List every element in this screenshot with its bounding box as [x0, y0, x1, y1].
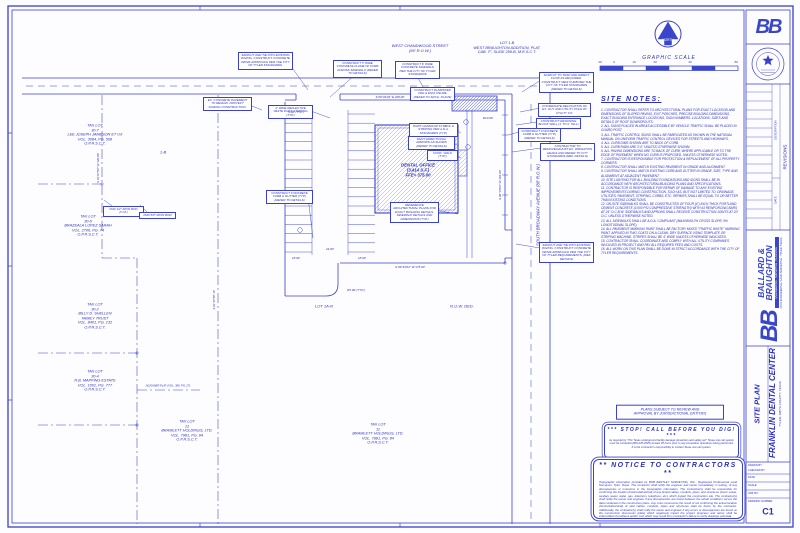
- notice-body: Topographic information provided by BOB …: [599, 481, 737, 519]
- dim-label: 18.00': [292, 256, 300, 260]
- callout: SAWCUT TO TRAP AND DIRECT FLOW AS REQUIR…: [539, 72, 594, 93]
- callout: COORDINATE RELOCATION OF EX. GUY AND UTI…: [538, 103, 591, 117]
- site-notes-title: SITE NOTES:: [601, 96, 661, 104]
- callout: CONC. WALK (TYP.): [427, 150, 458, 161]
- revisions-description-header: DESCRIPTION: [774, 120, 777, 139]
- bearing-label: N 89°44'04" W 175.00': [395, 265, 425, 269]
- revisions-title: REVISIONS: [782, 144, 788, 169]
- dim-label: R5.00' (TYP.): [347, 288, 365, 292]
- scale-tick: 0: [613, 60, 615, 64]
- tax-lot-label: TAX LOT 30-2 BILLY D. SHELLEN FAMILY TRU…: [78, 302, 112, 329]
- notice-title: ** NOTICE TO CONTRACTORS **: [594, 462, 742, 479]
- callout: CONSTRUCT DUMPSTER PAD & ENCLOSURE (REFE…: [410, 87, 455, 101]
- dim-label: 18.00': [358, 256, 366, 260]
- revisions-table-lines: [746, 84, 780, 230]
- stop-dig-box: *** STOP! CALL BEFORE YOU DIG! *** As re…: [604, 424, 739, 458]
- sheet-title: SITE PLAN: [753, 384, 762, 423]
- stop-dig-body: As required by "The Texas underground fa…: [609, 439, 734, 449]
- project-name: FRANKLIN DENTAL CENTER: [769, 350, 778, 458]
- callout: SAWCUT AND TIE INTO EXISTING PAVING. CON…: [238, 52, 293, 70]
- dim-label: R10.00': [483, 116, 493, 120]
- tax-lot-label: TAX LOT 30-7 LEE JOSEPH JAMESON ET UX VO…: [67, 124, 122, 147]
- bearing-label: S 01°07'56" W: [212, 290, 216, 309]
- graphic-scale-bar: [600, 66, 738, 71]
- blueprint-sheet: NORTH GRAPHIC SCALE 20 0 10 20 40 80 SIT…: [0, 0, 800, 533]
- callout: SAWCUT AND TIE INTO EXISTING PAVING. CON…: [539, 242, 594, 263]
- bearing-label: S 01°07'56" W 120.00': [96, 153, 100, 183]
- revisions-date-header: DATE: [774, 196, 777, 203]
- job-no-label: JOB NO.:: [748, 492, 759, 495]
- callout: CONSTRUCT 5' WIDE CONCRETE FLUME W/ CURB…: [333, 60, 382, 78]
- notice-contractors-box: ** NOTICE TO CONTRACTORS ** Topographic …: [593, 459, 743, 519]
- firm-logo-initials-large: BB: [756, 311, 784, 342]
- adjoiner-plat-label: ADJOINER PLAT (VOL. 389, PG. 27): [146, 385, 191, 388]
- sheet-number: C1: [762, 507, 774, 518]
- callout: CONSTRUCT 6' WIDE CONCRETE SIDEWALK PER …: [395, 61, 440, 79]
- scale-tick: 20: [653, 60, 656, 64]
- dim-label: 9.00' (TYP.): [288, 110, 304, 114]
- parking-stripes: [285, 110, 375, 255]
- firm-name-line2: BRAUGHTON: [765, 238, 774, 309]
- project-location: TYLER, SMITH COUNTY, TEXAS: [778, 350, 782, 458]
- callout: FND 5/8" IRON ROD: [139, 212, 176, 219]
- date-label: DATE:: [748, 476, 755, 479]
- callout: CONSTRUCT CONCRETE CURB & GUTTER (TYP.) …: [518, 128, 561, 142]
- row-ded-label: R.O.W. DED.: [450, 305, 474, 310]
- callout-leaders: [104, 62, 541, 248]
- drawing-number-label: DRAWING NUMBER: [748, 500, 772, 503]
- scale-tick: 10: [632, 60, 635, 64]
- bearing-label: S 89°44'04" E 208.00': [375, 95, 404, 99]
- callout: REFERENCE ARCHITECTURAL PLANS FOR EXACT …: [390, 202, 439, 223]
- building-label: DENTAL OFFICE (3,414 S.F.) FFE= 375.00: [401, 162, 435, 177]
- building-footprint: [298, 96, 497, 258]
- lot-1b-label: LOT 1-B WEST BRAUGHTON ADDITION, PLAT, C…: [473, 41, 540, 55]
- firm-logo-initials: BB: [756, 15, 781, 39]
- stop-dig-title: *** STOP! CALL BEFORE YOU DIG! ***: [605, 427, 738, 439]
- tax-lot-label: TAX LOT 11 BRAMLETT HOLDINGS, LTD. VOL. …: [352, 423, 403, 446]
- north-arrow-icon: [655, 21, 681, 47]
- checked-by-label: CHECKED BY:: [748, 469, 765, 472]
- callout: CONTRACTOR TO REMOVE/ADJUST EX. IRRIGATI…: [540, 143, 595, 161]
- site-notes-list: 1. CONTRACTOR SHALL REFER TO ARCHITECTUR…: [601, 108, 740, 255]
- pe-seal-icon: [752, 48, 784, 80]
- callout: PAINT DIRECTIONAL ARROWS AS SHOWN (REFER…: [408, 136, 455, 150]
- tax-lot-label: TAX LOT 30-6 BRAZEALA LOPEZ SARAH VOL. 2…: [64, 215, 111, 238]
- tax-lot-label: TAX LOT 12 BRAMLETT HOLDINGS, LTD. VOL. …: [161, 420, 212, 443]
- drawn-by-label: DRAWN BY:: [748, 464, 762, 467]
- firm-address: CIVIL ENGINEERING / LAND SURVEYING · TYL…: [780, 238, 783, 309]
- scale-label: SCALE:: [748, 484, 757, 487]
- callout: CONSTRUCT CONCRETE CURB & GUTTER (TYP.) …: [266, 190, 313, 204]
- scale-tick: 20: [598, 60, 601, 64]
- callout: FND 1/2" IRON ROD (C.M.): [103, 206, 144, 217]
- tax-lot-label: TAX LOT 30-4 R.B. MAPPING ESTATE VOL. 10…: [74, 370, 115, 393]
- street-label-top: WEST CHANDWOOD STREET (60' R.O.W.): [392, 44, 449, 54]
- lot-strip-label: 1-B: [160, 151, 166, 156]
- dim-label: 24.00': [326, 247, 334, 251]
- lot-1ar-label: LOT 1A-R: [315, 305, 333, 310]
- scale-tick: 80: [734, 60, 737, 64]
- bearing-label: S 00°16'04" W 165.00': [498, 170, 502, 200]
- street-label-right: SOUTH BROADWAY AVENUE (80' R.O.W.): [535, 164, 540, 246]
- north-label: NORTH: [662, 39, 673, 43]
- callout: EX. CONCRETE PAVEMENT TO REMAIN. PROTECT…: [203, 97, 252, 111]
- scale-tick: 40: [688, 60, 691, 64]
- firm-tagline: ENGINEERING · SURVEYING · PLANNING: [775, 238, 779, 309]
- property-lines: [38, 95, 218, 524]
- plans-subject-box: PLANS SUBJECT TO REVIEW AND APPROVAL BY …: [616, 405, 724, 420]
